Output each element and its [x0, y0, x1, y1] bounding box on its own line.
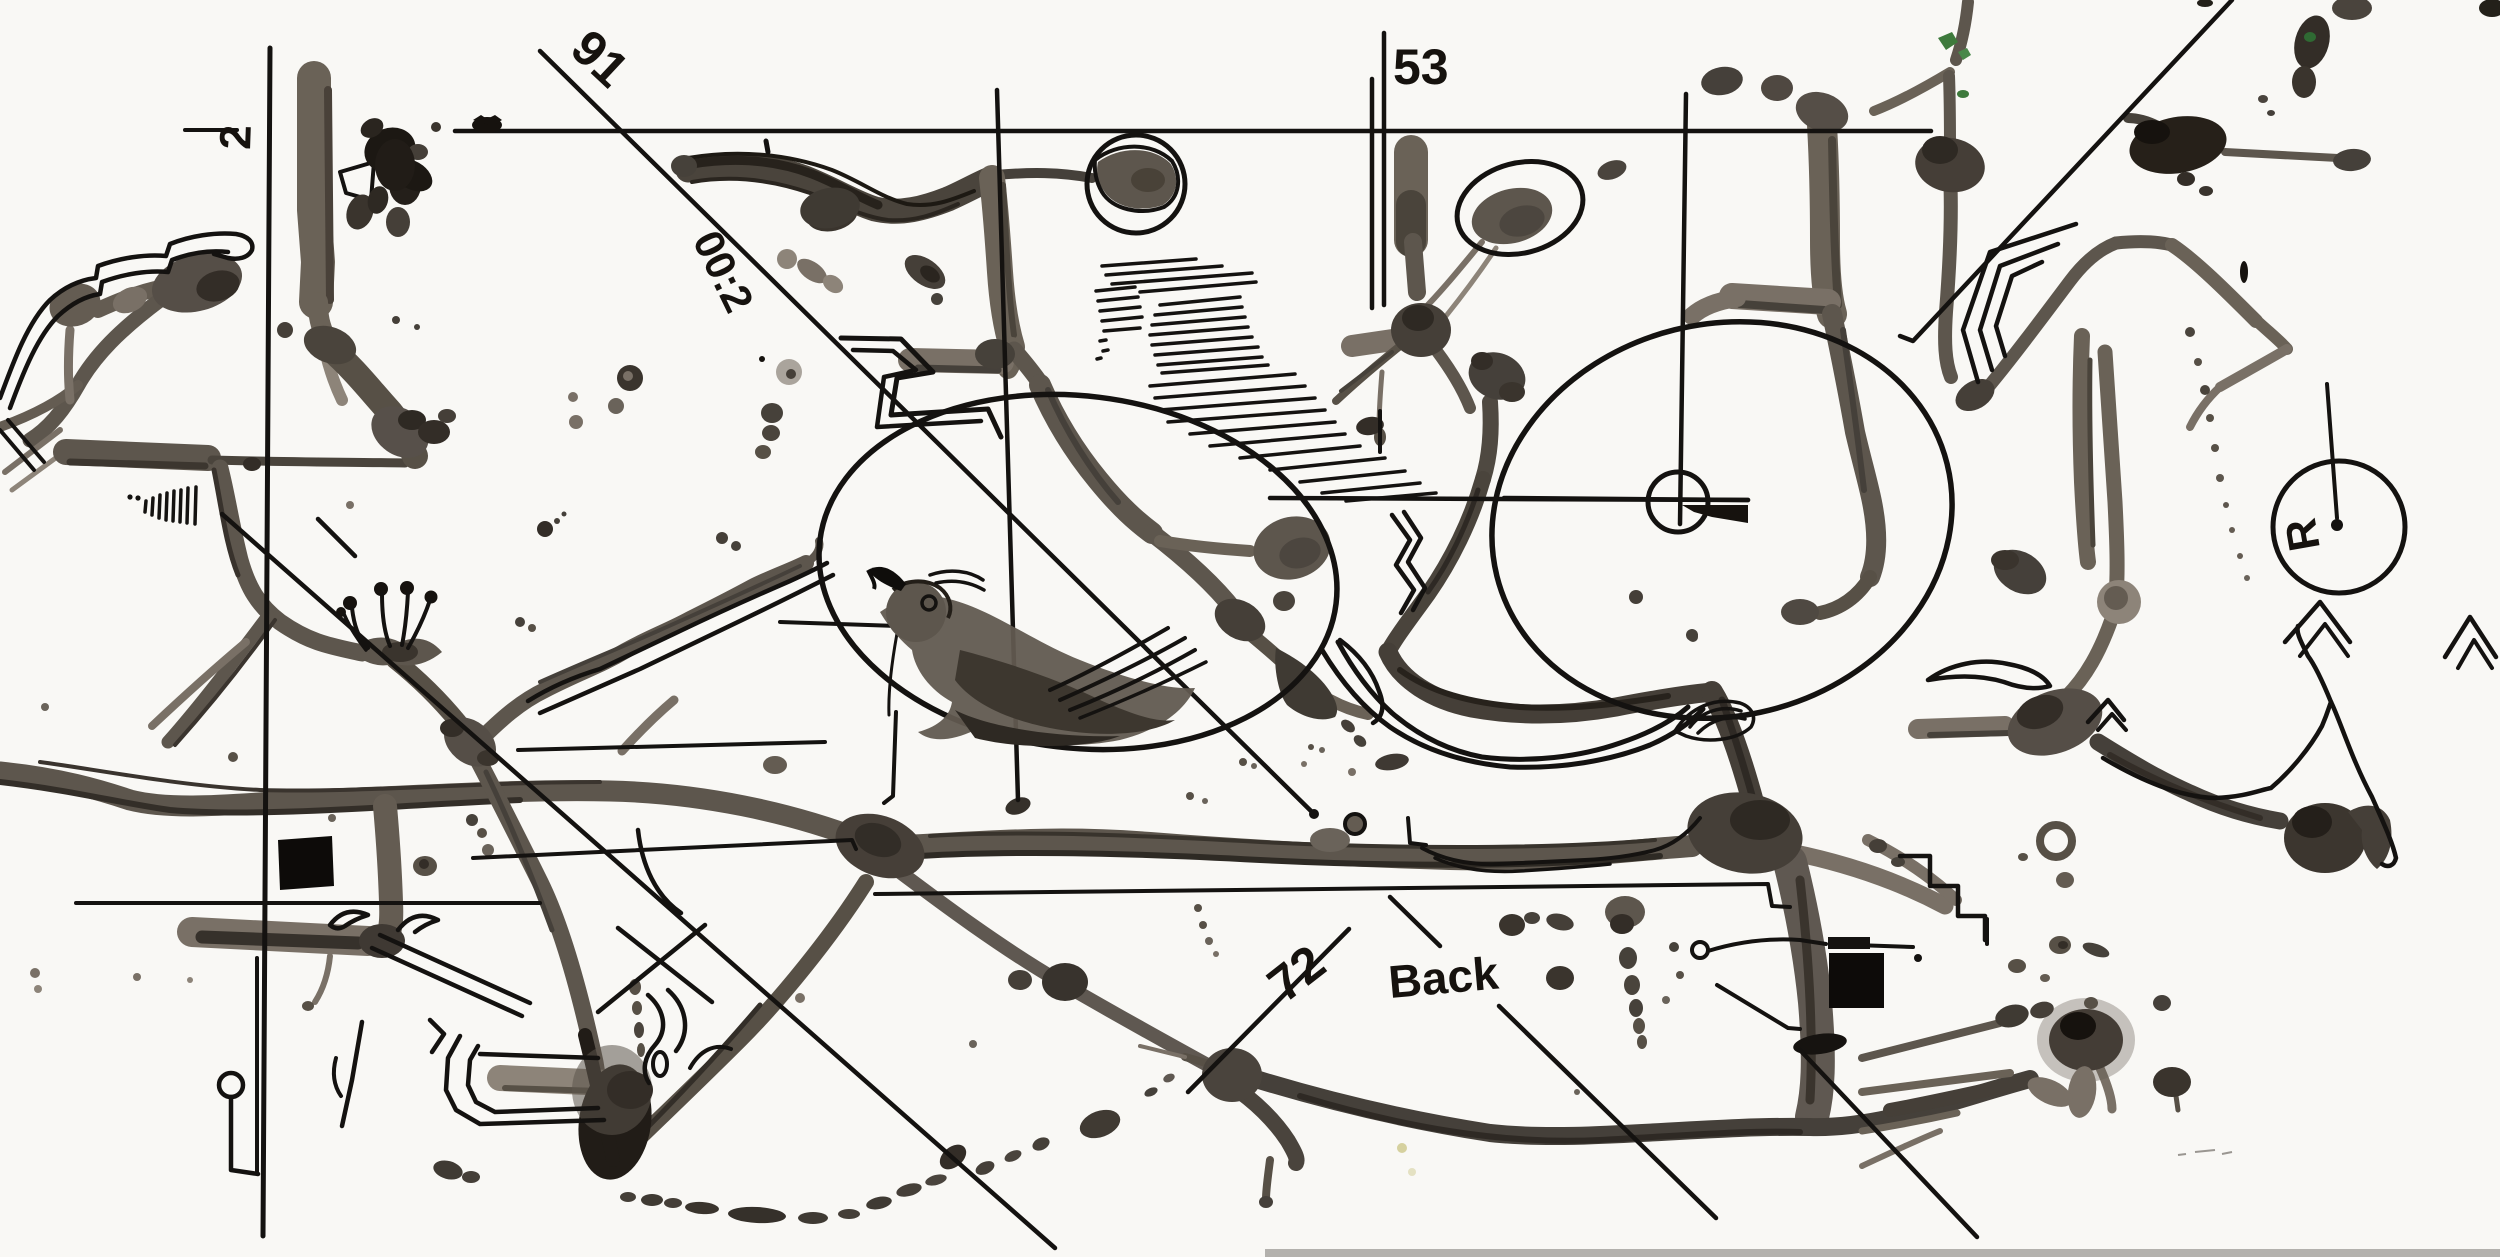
svg-text:Back: Back — [1386, 947, 1500, 1008]
svg-text:53: 53 — [1393, 39, 1449, 95]
svg-text:2: 2 — [211, 124, 261, 150]
